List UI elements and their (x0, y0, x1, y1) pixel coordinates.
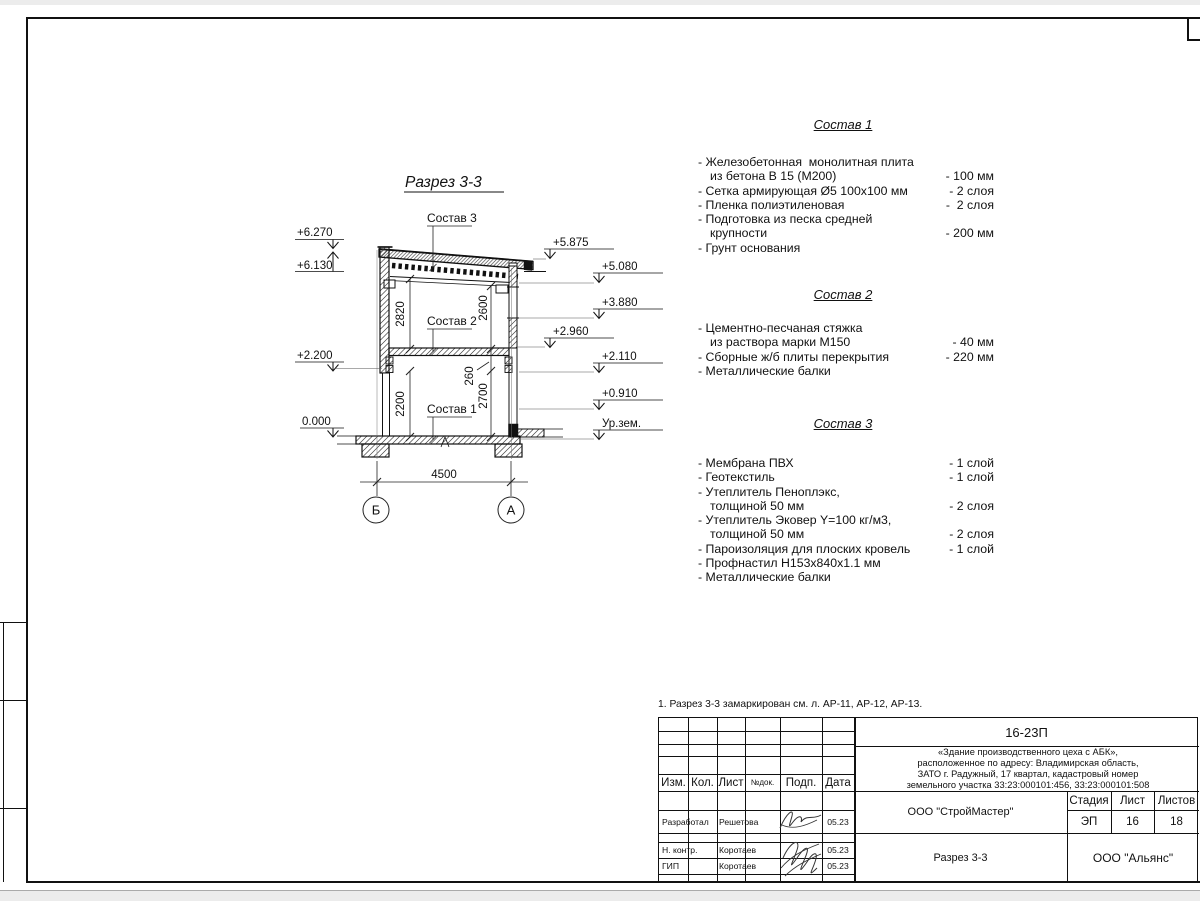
item-value: - 2 слоя (949, 527, 994, 541)
item-text: - Пароизоляция для плоских кровель (698, 542, 910, 556)
drawing-note: 1. Разрез 3-3 замаркирован см. л. АР-11,… (658, 699, 922, 710)
row-role: Н. контр. (660, 842, 719, 858)
list-item: - Утеплитель Эковер Y=100 кг/м3, (698, 513, 994, 527)
section-title: Разрез 3-3 (404, 174, 504, 192)
roof (379, 249, 546, 293)
list-item: - Профнастил Н153х840х1.1 мм (698, 556, 994, 570)
item-text: толщиной 50 мм (710, 499, 804, 513)
item-text: - Геотекстиль (698, 470, 775, 484)
item-value: - 2 слоя (949, 184, 994, 198)
sheets-total: 18 (1154, 810, 1199, 833)
item-value: - 40 мм (952, 335, 994, 349)
item-value: - 220 мм (946, 350, 994, 364)
item-value: - 1 слой (949, 470, 994, 484)
row-date: 05.23 (822, 810, 854, 833)
elev-left-6270: +6.270 (297, 227, 333, 239)
sheet-title: Разрез 3-3 (854, 833, 1067, 883)
elev-right-0910: +0.910 (602, 388, 638, 400)
list-item: - Сборные ж/б плиты перекрытия- 220 мм (698, 350, 994, 364)
item-value: - 1 слой (949, 456, 994, 470)
list-item: - Утеплитель Пеноплэкс, (698, 485, 994, 499)
dim-4500: 4500 (431, 469, 457, 481)
row-name: Коротаев (719, 858, 779, 874)
callout-sostav-2: Состав 2 (427, 314, 477, 328)
elev-right-3880: +3.880 (602, 297, 638, 309)
list-item: - Мембрана ПВХ- 1 слой (698, 456, 994, 470)
list-item: - Металлические балки (698, 364, 994, 378)
item-text: из раствора марки М150 (710, 335, 850, 349)
project-description: «Здание производственного цеха с АБК», р… (859, 747, 1197, 791)
item-value: - 2 слоя (946, 198, 994, 212)
item-text: - Металлические балки (698, 570, 831, 584)
list-item: крупности- 200 мм (698, 226, 994, 240)
item-text: толщиной 50 мм (710, 527, 804, 541)
item-text: - Утеплитель Эковер Y=100 кг/м3, (698, 513, 891, 527)
sheet-number: 16 (1111, 810, 1154, 833)
row-date: 05.23 (822, 858, 854, 874)
list-item: толщиной 50 мм- 2 слоя (698, 527, 994, 541)
composition-1-title: Состав 1 (690, 117, 996, 132)
col-header-ndoc: №док. (745, 774, 780, 791)
list-item: - Геотекстиль- 1 слой (698, 470, 994, 484)
drawing-sheet-page: { "sheet": { "note": "1. Разрез 3-3 зама… (0, 0, 1200, 900)
item-text: - Утеплитель Пеноплэкс, (698, 485, 840, 499)
item-value: - 1 слой (949, 542, 994, 556)
elev-left-2200: +2.200 (297, 350, 333, 362)
callouts: Состав 3 Состав 2 Состав 1 (427, 211, 477, 443)
axis-label-b: Б (372, 503, 381, 518)
elev-right-2110: +2.110 (602, 351, 637, 363)
composition-2-title: Состав 2 (690, 287, 996, 302)
col-header-izm: Изм. (659, 774, 688, 791)
callout-sostav-1: Состав 1 (427, 402, 477, 416)
elev-left-0000: 0.000 (302, 416, 331, 428)
stage-value: ЭП (1067, 810, 1111, 833)
elev-right-urzem: Ур.зем. (602, 418, 641, 430)
item-text: - Цементно-песчаная стяжка (698, 321, 863, 335)
axis-bubbles: Б А (363, 497, 524, 523)
elev-right-5080: +5.080 (602, 261, 638, 273)
item-text: - Сетка армирующая Ø5 100х100 мм (698, 184, 908, 198)
sheet-label: Лист (1111, 791, 1154, 810)
design-organization: ООО "СтройМастер" (854, 791, 1067, 833)
composition-3-list: - Мембрана ПВХ- 1 слой - Геотекстиль- 1 … (698, 456, 994, 585)
project-line: ЗАТО г. Радужный, 17 квартал, кадастровы… (859, 769, 1197, 780)
row-name: Решетова (719, 810, 779, 833)
row-role: ГИП (660, 858, 719, 874)
list-item: - Пленка полиэтиленовая- 2 слоя (698, 198, 994, 212)
titleblock-gridline (659, 756, 854, 757)
floors (337, 250, 563, 459)
composition-3-title: Состав 3 (690, 416, 996, 431)
axis-label-a: А (507, 503, 516, 518)
item-text: - Пленка полиэтиленовая (698, 198, 844, 212)
dim-260: 260 (464, 366, 476, 385)
dim-2200: 2200 (395, 391, 407, 417)
item-value: - 100 мм (946, 169, 994, 183)
item-value: - 200 мм (946, 226, 994, 240)
composition-1-list: - Железобетонная монолитная плита из бет… (698, 155, 994, 255)
callout-sostav-3: Состав 3 (427, 211, 477, 225)
list-item: - Металлические балки (698, 570, 994, 584)
row-name: Коротаев (719, 842, 779, 858)
item-text: из бетона В 15 (М200) (710, 169, 836, 183)
col-header-podp: Подп. (780, 774, 822, 791)
doc-number: 16-23П (854, 718, 1199, 746)
col-header-data: Дата (822, 774, 854, 791)
list-item: толщиной 50 мм- 2 слоя (698, 499, 994, 513)
row-date: 05.23 (822, 842, 854, 858)
list-item: - Подготовка из песка средней (698, 212, 994, 226)
list-item: - Грунт основания (698, 241, 994, 255)
list-item: - Цементно-песчаная стяжка (698, 321, 994, 335)
project-line: земельного участка 33:23:000101:456, 33:… (859, 780, 1197, 791)
elev-right-2960: +2.960 (553, 326, 589, 338)
item-text: крупности (710, 226, 767, 240)
titleblock-gridline (659, 744, 854, 745)
item-text: - Мембрана ПВХ (698, 456, 794, 470)
stage-label: Стадия (1067, 791, 1111, 810)
list-item: - Пароизоляция для плоских кровель- 1 сл… (698, 542, 994, 556)
customer-organization: ООО "Альянс" (1067, 833, 1199, 883)
elev-left-6130: +6.130 (297, 260, 333, 272)
composition-2-list: - Цементно-песчаная стяжка из раствора м… (698, 321, 994, 378)
list-item: - Сетка армирующая Ø5 100х100 мм- 2 слоя (698, 184, 994, 198)
item-text: - Металлические балки (698, 364, 831, 378)
item-text: - Подготовка из песка средней (698, 212, 872, 226)
item-text: - Профнастил Н153х840х1.1 мм (698, 556, 881, 570)
col-header-kol: Кол. (688, 774, 717, 791)
title-block: Изм. Кол. Лист №док. Подп. Дата Разработ… (658, 717, 1198, 882)
dim-2820: 2820 (395, 301, 407, 327)
sheets-label: Листов (1154, 791, 1199, 810)
item-text: - Железобетонная монолитная плита (698, 155, 914, 169)
project-line: «Здание производственного цеха с АБК», (859, 747, 1197, 758)
row-role: Разработал (660, 810, 719, 833)
section-title-text: Разрез 3-3 (405, 174, 482, 191)
list-item: из раствора марки М150- 40 мм (698, 335, 994, 349)
dim-2600: 2600 (478, 295, 490, 321)
elev-right-5875: +5.875 (553, 237, 589, 249)
item-text: - Сборные ж/б плиты перекрытия (698, 350, 889, 364)
item-text: - Грунт основания (698, 241, 800, 255)
col-header-list: Лист (717, 774, 745, 791)
item-value: - 2 слоя (949, 499, 994, 513)
list-item: - Железобетонная монолитная плита (698, 155, 994, 169)
titleblock-gridline (659, 731, 854, 732)
project-line: расположенное по адресу: Владимирская об… (859, 758, 1197, 769)
signature-razrabotal (777, 806, 825, 882)
list-item: из бетона В 15 (М200)- 100 мм (698, 169, 994, 183)
dim-2700: 2700 (478, 383, 490, 409)
